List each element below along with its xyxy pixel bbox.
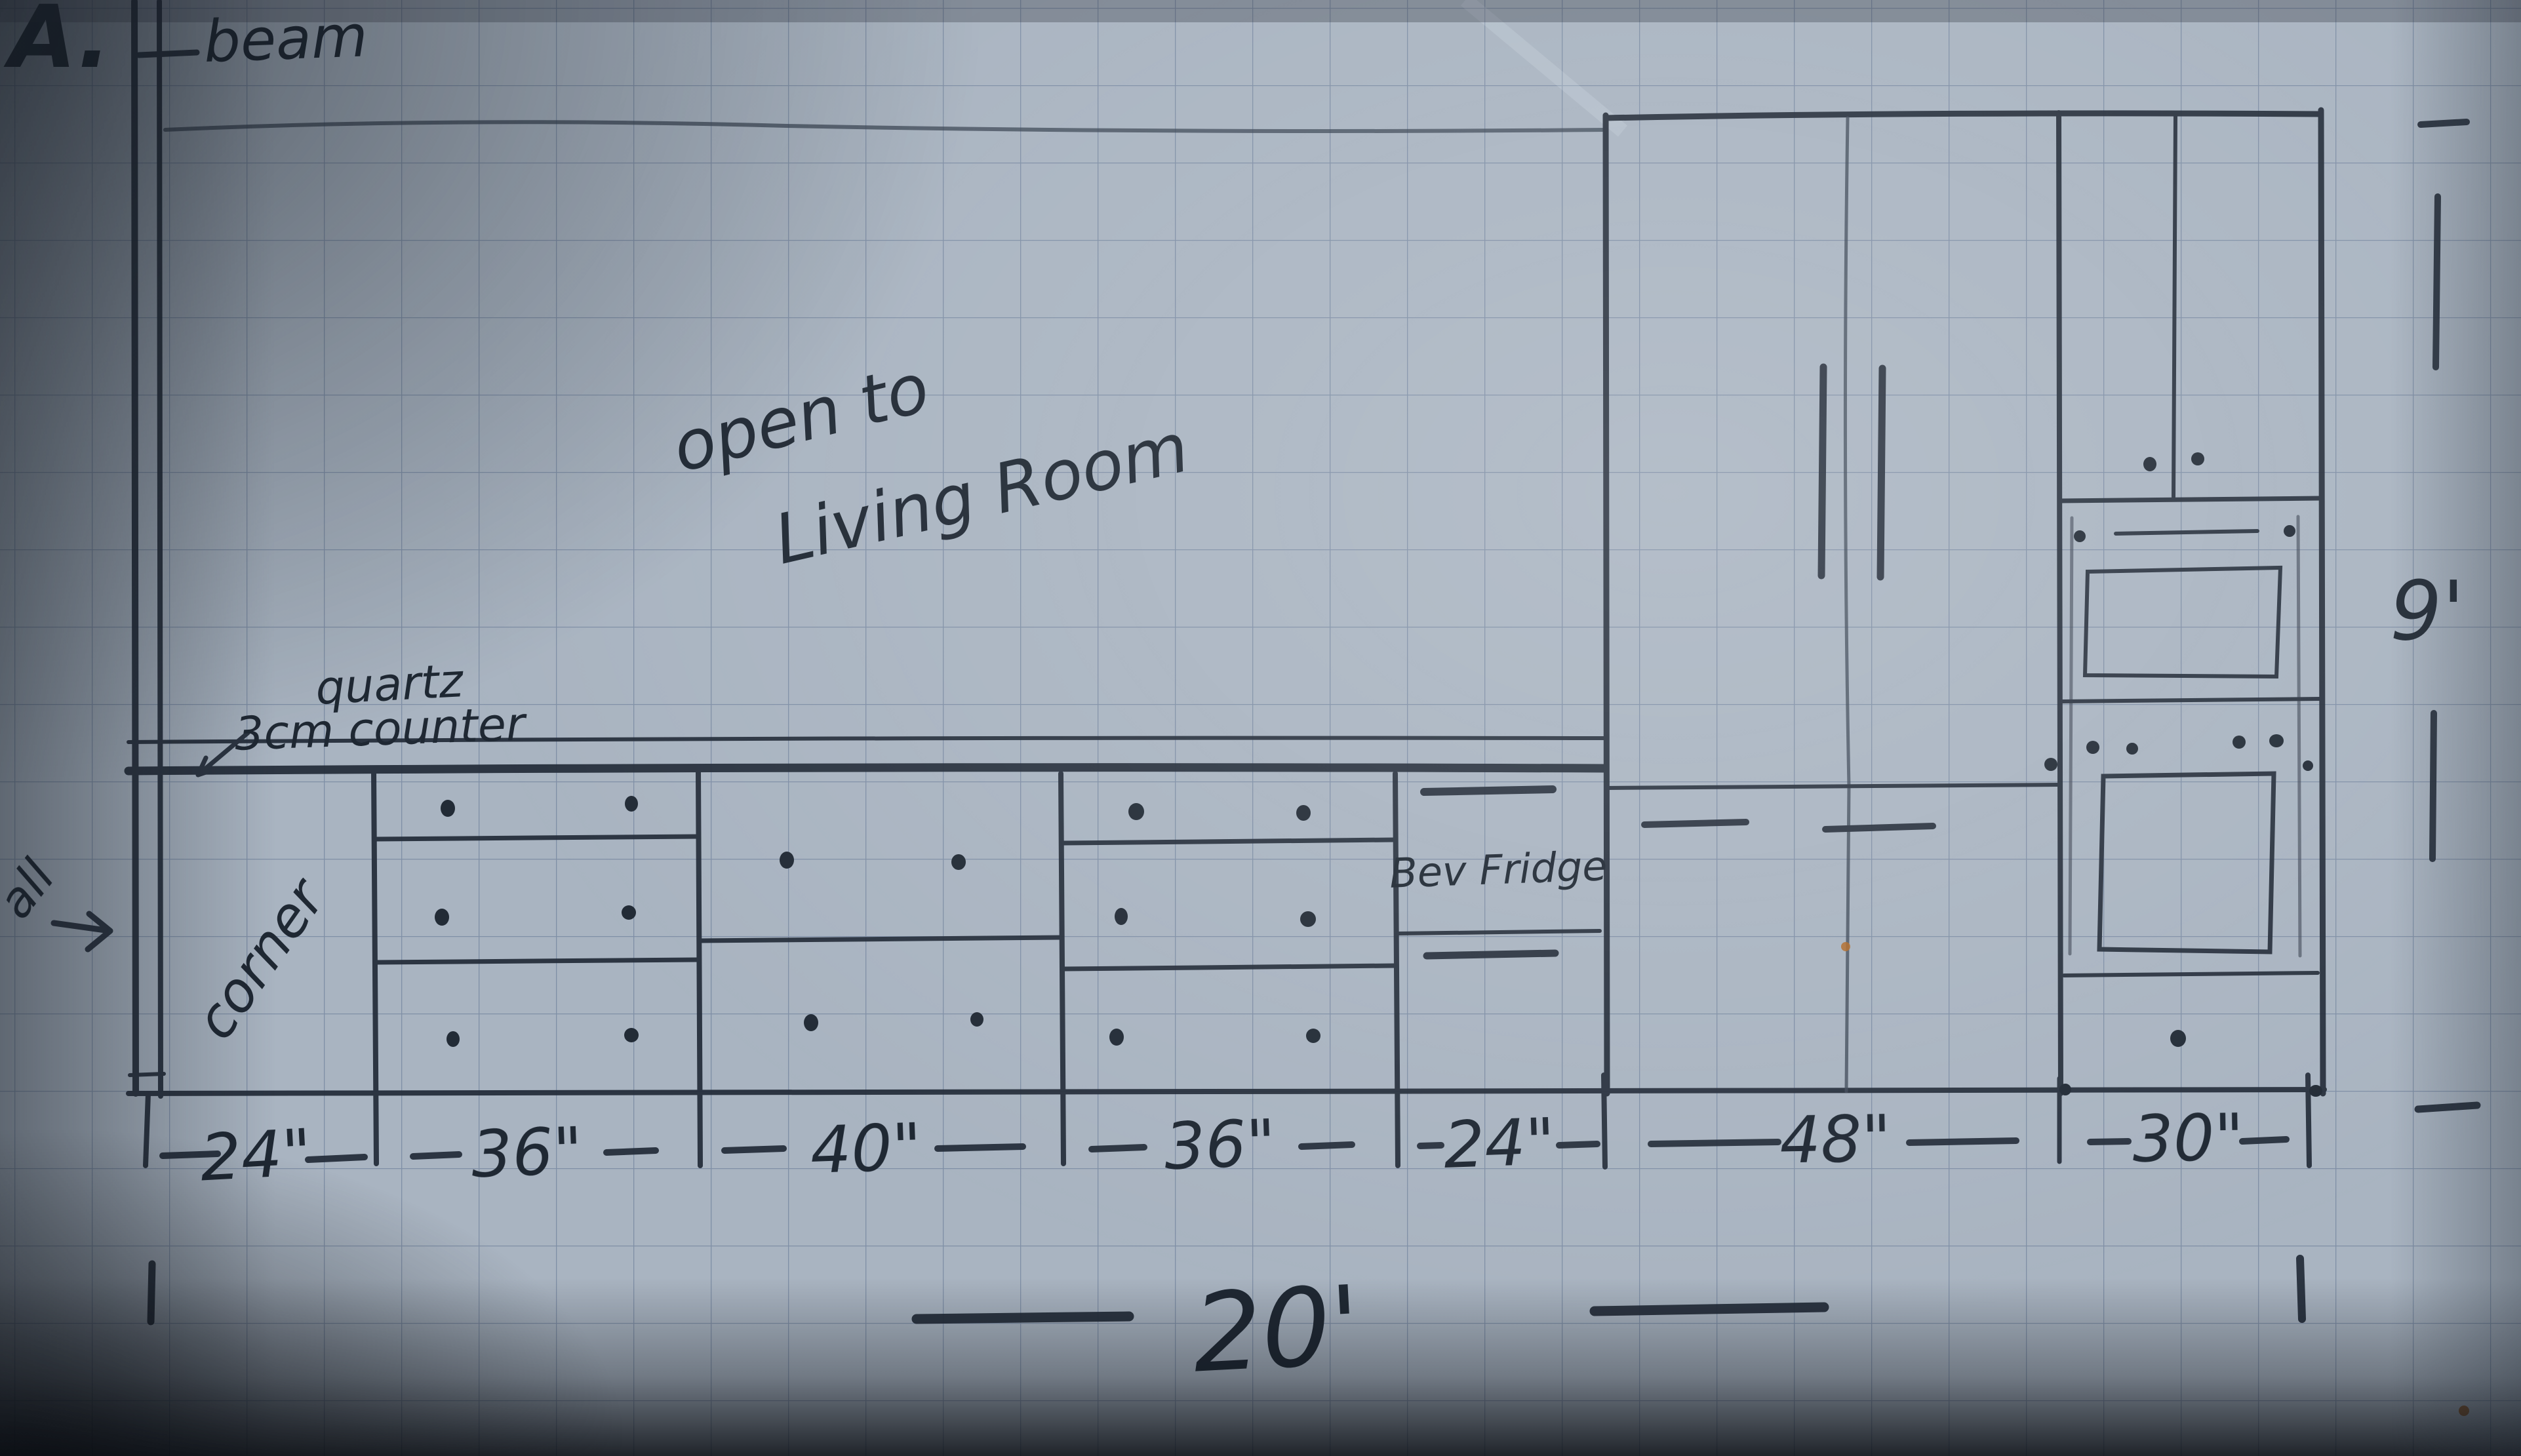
- dim-24: 24": [199, 1116, 314, 1196]
- dim-48: 48": [1779, 1102, 1892, 1179]
- dim-36-2: 36": [1163, 1106, 1277, 1185]
- kitchen-elevation-sketch: A. beam open to Living Room quartz 3cm c…: [0, 0, 2521, 1456]
- dim-30: 30": [2132, 1101, 2245, 1177]
- beam-tick: [139, 52, 197, 55]
- oven-control-knob: [2126, 743, 2138, 755]
- total-width-label: 20': [1190, 1263, 1364, 1397]
- ceiling-height-label: 9': [2390, 564, 2465, 659]
- dim-36: 36": [470, 1114, 584, 1192]
- pantry-handle-right: [1880, 368, 1882, 577]
- sheet-label: A.: [3, 0, 111, 88]
- microwave-handle: [2116, 531, 2257, 534]
- pantry-lower-handle-right: [1825, 826, 1933, 829]
- paper-speck: [2459, 1406, 2469, 1416]
- base-cabinet-40: [700, 937, 1060, 941]
- bev-fridge-label: Bev Fridge: [1389, 842, 1608, 897]
- pantry-handle-left: [1821, 367, 1823, 576]
- dim-24-2: 24": [1442, 1105, 1557, 1183]
- sketch-canvas: A. beam open to Living Room quartz 3cm c…: [0, 0, 2521, 1456]
- upper-cab-door-split: [2174, 115, 2175, 497]
- pantry-lower-handle-left: [1644, 822, 1746, 825]
- dim-40: 40": [809, 1110, 923, 1189]
- upper-cab-knob: [2191, 452, 2204, 465]
- paper-speck: [1841, 942, 1850, 951]
- oven-control-knob: [2269, 734, 2284, 747]
- counter-label: 3cm counter: [233, 697, 528, 761]
- oven-control-knob: [2086, 741, 2099, 754]
- oven-control-knob: [2233, 736, 2246, 749]
- beam-label: beam: [203, 2, 368, 75]
- upper-cab-knob: [2143, 457, 2156, 471]
